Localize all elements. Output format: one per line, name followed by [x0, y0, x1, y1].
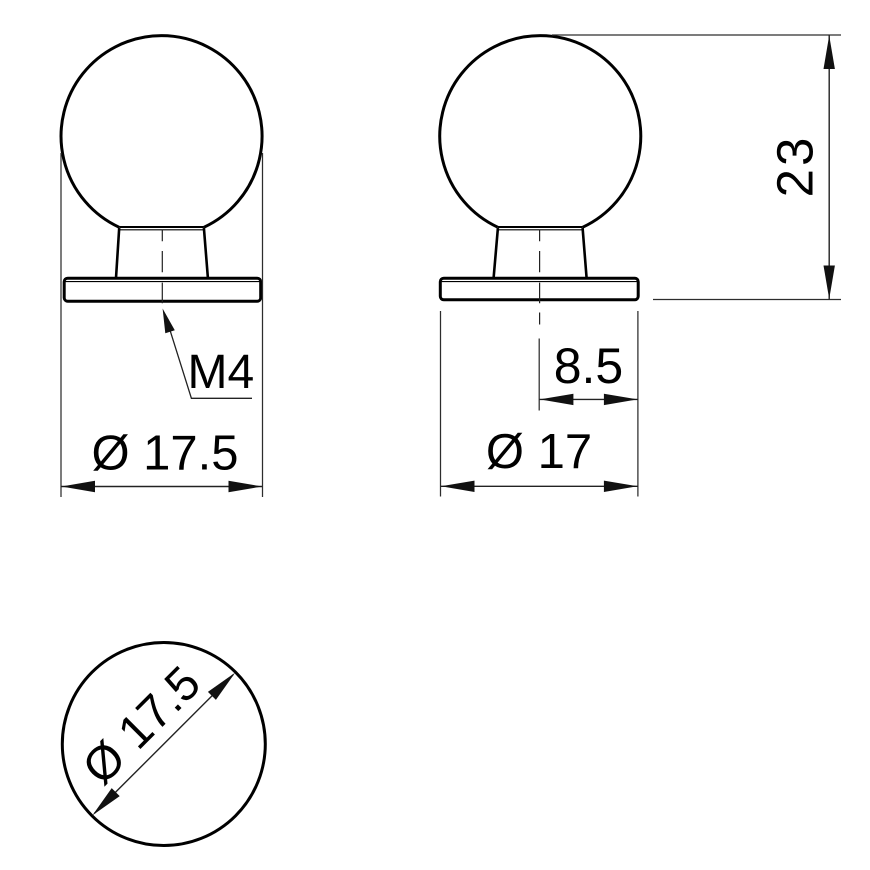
svg-text:23: 23 [767, 135, 824, 198]
svg-text:Ø 17.5: Ø 17.5 [91, 427, 238, 481]
svg-text:8.5: 8.5 [554, 338, 624, 394]
svg-text:Ø 17: Ø 17 [486, 425, 592, 479]
svg-text:M4: M4 [188, 346, 255, 399]
